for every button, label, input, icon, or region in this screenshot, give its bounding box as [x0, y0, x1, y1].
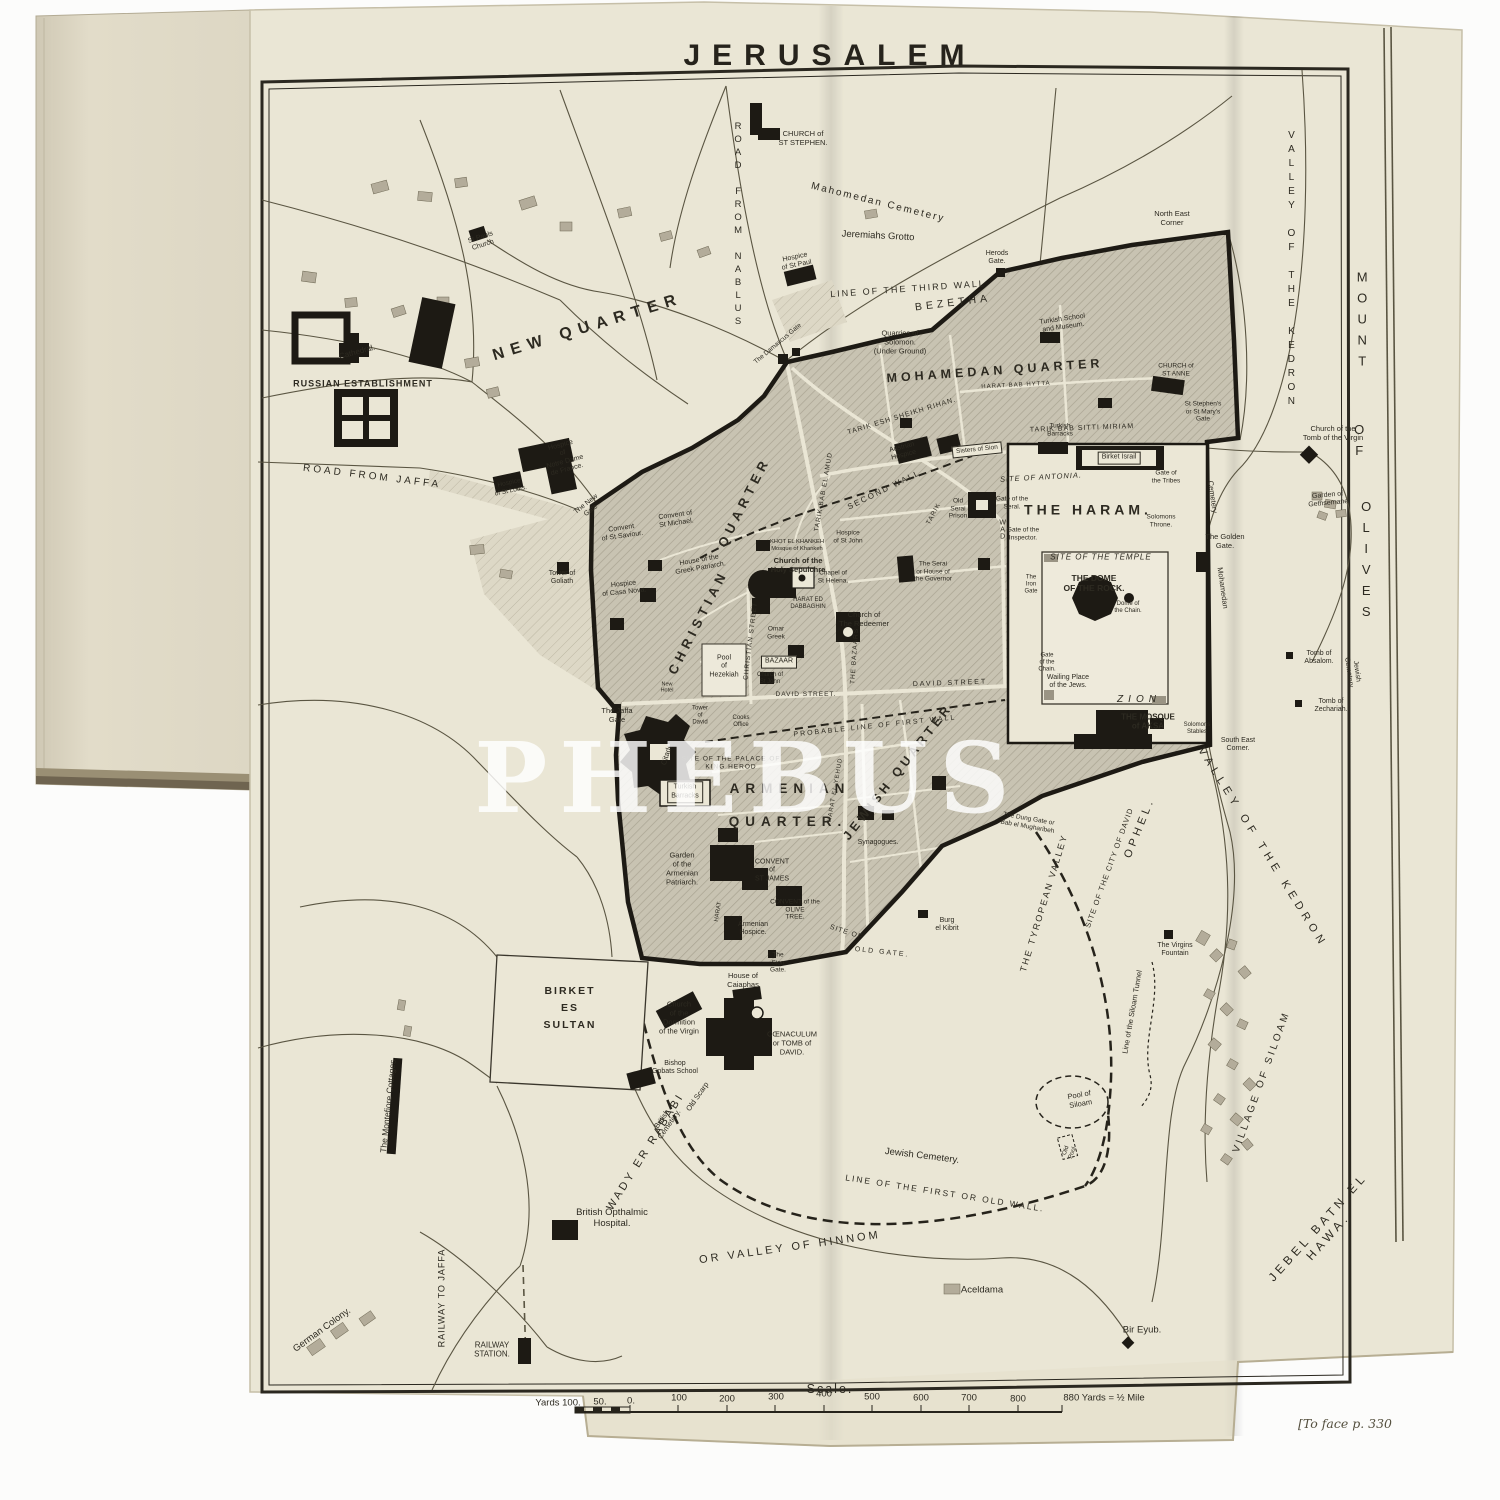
map-label-burg-el-kibrit: Burg el Kibrit [935, 917, 958, 934]
map-label-railway-station: RAILWAY STATION. [474, 1341, 510, 1360]
photo-background: NEW QUARTERMOHAMEDAN QUARTERCHRISTIANQUA… [0, 0, 1500, 1500]
map-label-old-serai-prison: Old Serai Prison [949, 498, 967, 521]
map-label-turkish-barracks: Turkish Barracks [1047, 422, 1073, 437]
map-label-tower-of-goliath: Tower of Goliath [549, 570, 575, 587]
map-label-the-serai-or-house-of-the-governor: The Serai or House of the Governor [914, 561, 952, 584]
map-label-second-wall: SECOND WALL [846, 468, 922, 512]
map-label-tomb-of-absalom: Tomb of Absalom. [1304, 650, 1333, 667]
map-label-tarik-bab-el-amud: TARIK BAB EL AMUD [813, 452, 835, 533]
map-label-tarik-bab-sitti-miriam: TARIK BAB SITTI MIRIAM [1030, 423, 1135, 435]
map-label-birket-israil: Birket Israil [1098, 452, 1141, 465]
map-label-cemetery: Cemetery [1205, 480, 1218, 513]
map-label-700: 700 [961, 1392, 977, 1403]
map-label-tarik-esh-sheikh-rihan: TARIK ESH SHEIKH RIHAN. [847, 397, 958, 438]
map-label-british-opthalmic-hospital: British Opthalmic Hospital. [576, 1207, 648, 1229]
map-label-site-of: SITE OF [828, 924, 863, 942]
map-label-100: 100 [671, 1392, 687, 1403]
plate-caption: [To face p. 330 [1298, 1416, 1392, 1431]
map-label-quarries-of-solomon-under-ground: Quarries of Solomon. (Under Ground) [874, 330, 927, 357]
map-label-50: 50. [593, 1396, 606, 1407]
map-label-david-street: DAVID STREET. [776, 691, 837, 699]
map-label-line-of-the-first-or-old-wall: LINE OF THE FIRST OR OLD WALL. [845, 1172, 1046, 1213]
map-label-herods-gate: Herods Gate. [986, 250, 1009, 267]
map-label-sisters-of-sion: Sisters of Sion [952, 441, 1003, 458]
map-label-christian-street: CHRISTIAN STREET [742, 602, 759, 681]
map-label-pool-of-hezekiah: Pool of Hezekiah [709, 655, 738, 680]
map-label-line-of-the-siloam-tunnel: Line of the Siloam Tunnel [1121, 970, 1144, 1055]
map-label-old-pool: Old Pool [1061, 1144, 1078, 1160]
map-label-bezetha: BEZETHA [914, 292, 991, 314]
map-label-200: 200 [719, 1393, 735, 1404]
map-label-convent-of-st-james: CONVENT of ST JAMES [755, 859, 789, 884]
map-label-david-street: DAVID STREET [913, 679, 988, 690]
map-label-the-haram: THE HARAM. [1024, 502, 1152, 519]
map-label-880-yards-mile: 880 Yards = ½ Mile [1063, 1392, 1144, 1403]
map-label-st-stephen-s-or-st-mary-s-gate: St Stephen's or St Mary's Gate [1185, 401, 1222, 424]
map-label-omar-greek: Omar Greek [767, 625, 785, 640]
map-label-solomons-stables: Solomons Stables [1184, 722, 1211, 736]
map-label-jeremiahs-grotto: Jeremiahs Grotto [841, 228, 914, 243]
map-label-site-of-the-palace-of-king-herod: SITE OF THE PALACE OF KING HEROD [682, 755, 781, 770]
map-labels-layer: NEW QUARTERMOHAMEDAN QUARTERCHRISTIANQUA… [0, 0, 1500, 1500]
map-label-valley-of-the-kedron: VALLEY OF THE KEDRON [1195, 745, 1330, 950]
map-label-c-naculum-or-tomb-of-david: CŒNACULUM or TOMB of DAVID. [767, 1031, 817, 1058]
map-label-aceldama: Aceldama [961, 1284, 1003, 1295]
map-label-600: 600 [913, 1392, 929, 1403]
map-label-or-valley-of-hinnom: OR VALLEY OF HINNOM [698, 1229, 881, 1267]
map-label-bazaar: BAZAAR [761, 656, 797, 669]
map-label-south-east-corner: South East Corner. [1221, 737, 1255, 754]
map-label-railway-to-jaffa: RAILWAY TO JAFFA [437, 1249, 448, 1348]
map-label-harat-bab-hytta: HARAT BAB HYTTA [981, 381, 1051, 392]
map-label-the-dung-gate-or-bab-el-mugharibeh: The Dung Gate or Bab el Mugharibeh [1000, 811, 1056, 836]
map-label-cooks-office: Cooks Office [732, 715, 749, 729]
map-label-mohamedan: Mohamedan [1215, 567, 1230, 610]
map-label-hospice-of-notre-dame-de-france: Hospice of Notre Dame de France. [542, 437, 587, 479]
map-label-church-of-the-tomb-of-the-virgin: Church of the Tomb of the Virgin [1303, 425, 1363, 443]
map-label-old-gate: OLD GATE. [854, 946, 909, 960]
map-label-synagogues: Synagogues. [858, 839, 899, 847]
map-label-new-quarter: NEW QUARTER [491, 290, 686, 366]
map-label-pool-of-siloam: Pool of Siloam [1067, 1089, 1093, 1110]
map-label-chapel-of-st-helena: Chapel of St Helena. [818, 569, 848, 584]
map-label-the-new-gate: The New Gate [573, 493, 605, 523]
map-label-church-of-st-john: Church of St John [757, 672, 783, 686]
map-label-gate-of-the-tribes: Gate of the Tribes [1152, 469, 1181, 484]
map-label-austrian-hospice: Austrian Hospice [889, 441, 918, 463]
map-label-khot-el-khankeh-mosque-of-khankeh: KHOT EL KHANKEH Mosque of Khankeh [770, 539, 824, 553]
map-label-convent-of-st-michael: Convent of St Michael. [658, 509, 695, 530]
map-label-bir-eyub: Bir Eyub. [1123, 1324, 1162, 1335]
map-label-church-of-the-dormition-of-the-virgin: Church of the Dormition of the Virgin [659, 1000, 699, 1035]
map-label-the-sion-gate: The Sion Gate. [770, 952, 786, 975]
map-label-olives: OLIVES [1358, 499, 1373, 625]
map-label-church-of-st-anne: CHURCH of ST ANNE [1158, 362, 1193, 377]
map-label-mohamedan-quarter: MOHAMEDAN QUARTER [886, 356, 1104, 386]
map-label-house-of-caiaphas: House of Caiaphas [727, 972, 759, 990]
map-label-gate-of-the-seral: Gate of the Seral. [996, 495, 1028, 510]
map-label-north-east-corner: North East Corner [1154, 210, 1189, 228]
map-label-the-golden-gate: The Golden Gate. [1205, 533, 1244, 551]
map-label-solomons-throne: Solomons Throne. [1147, 513, 1176, 528]
map-title: JERUSALEM [683, 39, 976, 73]
map-label-hospice-of-casa-nova: Hospice of Casa Nova. [601, 578, 647, 599]
map-label-turkish-school-and-museum: Turkish School and Museum. [1039, 313, 1087, 336]
map-label-0: 0. [627, 1395, 635, 1406]
map-label-mount: MOUNT [1354, 270, 1369, 375]
map-label-the-dome-of-the-rock: THE DOME OF THE ROCK. [1064, 573, 1125, 593]
map-label-the-damascus-gate: The Damascus Gate [753, 322, 804, 366]
map-label-the-mosque-of-aksa: THE MOSQUE of AKSA [1121, 713, 1175, 732]
map-label-the-tyropean-valley: THE TYROPEAN VALLEY [1018, 833, 1070, 974]
map-label-st-pauls-church: St Pauls Church [467, 230, 497, 254]
map-label-german-colony: German Colony. [291, 1305, 353, 1354]
map-label-cathedral: Cathedral. [338, 343, 376, 362]
map-label-garden-of-gethsemane: Garden of Gethsemane [1307, 490, 1348, 510]
map-label-site-of-antonia: SITE OF ANTONIA. [1000, 471, 1082, 484]
map-label-hospice-of-st-paul: Hospice of St Paul [779, 251, 812, 273]
map-label-wad: WAD [998, 520, 1006, 541]
map-label-armenian-hospice: Armenian Hospice. [738, 921, 768, 938]
map-label-church-of-st-stephen: CHURCH of ST STEPHEN. [778, 130, 827, 148]
map-label-church-of-the-redeemer: Church of The Redeemer [839, 611, 889, 629]
map-label-jebel-batn-el-hawa: JEBEL BATN EL HAWA. [1253, 1157, 1392, 1307]
map-label-old-scarp: Old Scarp [685, 1081, 711, 1113]
map-label-hospice-of-st-louis: Hospice of St Louis. [492, 476, 527, 498]
map-label-jewish-cemetery: Jewish Cemetery [1342, 656, 1363, 688]
map-label-mahomedan-cemetery: Mahomedan Cemetery [810, 181, 946, 226]
map-label-new-hotel: New Hotel [661, 682, 674, 695]
map-label-site-of-the-temple: SITE OF THE TEMPLE [1050, 552, 1151, 561]
map-label-gate-of-the-chain: Gate of the Chain. [1038, 652, 1055, 673]
map-label-the-montefiore-cottages: The Montefiore Cottages. [378, 1057, 398, 1153]
map-label-road-from-nablus: ROAD FROM NABLUS [732, 121, 743, 329]
map-label-the-jaffa-gate: The Jaffa Gate [601, 707, 632, 725]
map-label-yards-100: Yards 100. [535, 1397, 580, 1408]
map-label-800: 800 [1010, 1393, 1026, 1404]
map-label-convent-of-st-saviour: Convent of St Saviour. [600, 522, 644, 544]
map-label-tarik: TARIK [925, 502, 943, 526]
map-label-harat-ed-dabbaghin: HARAT ED DABBAGHIN [790, 597, 825, 611]
map-label-harat: HARAT [714, 902, 724, 923]
map-label-tower-of-david: Tower of David [692, 705, 708, 726]
map-label-turkish-barracks: Turkish Barracks [667, 781, 703, 803]
map-label-citadel: Citadel. [660, 740, 676, 767]
map-label-site-of-the-city-of-david: SITE OF THE CITY OF DAVID [1084, 807, 1136, 929]
map-label-quarter: QUARTER [715, 454, 774, 549]
map-label-tomb-of-zechariah: Tomb of Zechariah. [1314, 698, 1347, 715]
map-label-bishop-gobats-school: Bishop Gobats School [652, 1060, 698, 1077]
map-label-village-of-siloam: VILLAGE OF SILOAM [1231, 1010, 1293, 1155]
map-label-the-virgins-fountain: The Virgins Fountain [1157, 942, 1192, 959]
map-label-road-from-jaffa: ROAD FROM JAFFA [302, 463, 441, 492]
map-label-jewish-cemetery: Jewish Cemetery. [884, 1146, 960, 1166]
map-label-valley-of-the-kedron: VALLEY OF THE KEDRON [1285, 130, 1297, 410]
map-label-gate-of-the-inspector: Gate of the Inspector. [1007, 526, 1039, 541]
map-label-hospice-of-st-john: Hospice of St John [833, 529, 862, 544]
map-label-zion: ZION [1117, 694, 1161, 706]
map-label-russian-establishment: RUSSIAN ESTABLISHMENT [293, 379, 433, 390]
map-label-the-iron-gate: The Iron Gate [1024, 574, 1037, 595]
scale-heading: — Scale. — [787, 1382, 874, 1396]
map-label-300: 300 [768, 1391, 784, 1402]
map-label-garden-of-the-armenian-patriarch: Garden of the Armenian Patriarch. [666, 851, 698, 886]
map-label-birket-es-sultan: BIRKET ES SULTAN [543, 983, 596, 1033]
map-label-the-bazaars: THE BAZAARS [849, 628, 861, 685]
map-label-wailing-place-of-the-jews: Wailing Place of the Jews. [1047, 674, 1089, 691]
map-label-dome-of-the-chain: Dome of the Chain. [1114, 601, 1141, 615]
map-label-convent-of-the-olive-tree: CONVENT of the OLIVE TREE. [770, 899, 820, 922]
